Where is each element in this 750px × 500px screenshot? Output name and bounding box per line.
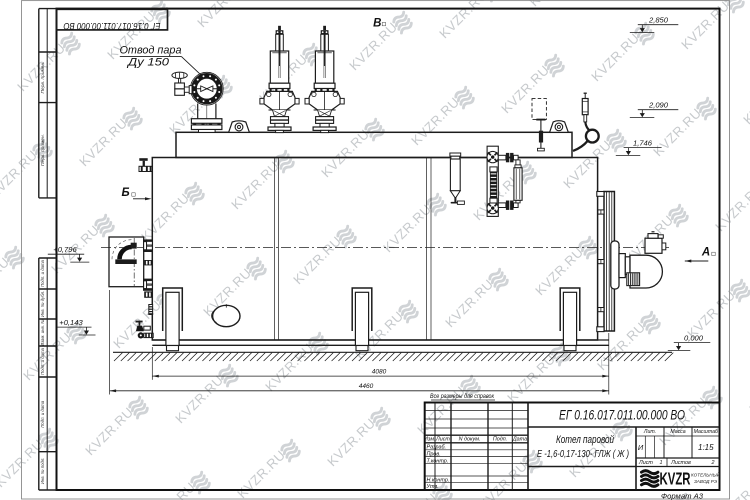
svg-text:Подп. и дата: Подп. и дата <box>40 400 45 428</box>
svg-text:2,090: 2,090 <box>648 100 669 109</box>
svg-text:ЗАВОД РЭ: ЗАВОД РЭ <box>694 479 718 484</box>
svg-text:Ду 150: Ду 150 <box>127 57 169 69</box>
svg-text:Котел паровой: Котел паровой <box>556 434 614 446</box>
svg-text:Перв. примен.: Перв. примен. <box>40 62 46 94</box>
svg-text:2,850: 2,850 <box>648 15 669 24</box>
svg-text:Взам. инв. №: Взам. инв. № <box>40 319 45 346</box>
svg-text:1: 1 <box>660 460 663 466</box>
svg-text:Лит.: Лит. <box>643 429 656 435</box>
svg-text:4460: 4460 <box>359 383 374 390</box>
svg-text:Разраб.: Разраб. <box>427 445 447 451</box>
svg-text:Дата: Дата <box>512 437 527 443</box>
svg-text:Изм.: Изм. <box>424 437 436 443</box>
svg-text:Н.контр.: Н.контр. <box>427 477 450 483</box>
svg-text:Масса: Масса <box>670 429 685 435</box>
svg-text:Отвод пара: Отвод пара <box>120 44 182 56</box>
svg-text:Инв. № подл.: Инв. № подл. <box>40 458 45 485</box>
svg-text:Формат А3: Формат А3 <box>661 491 703 500</box>
svg-text:+0,796: +0,796 <box>53 245 77 254</box>
svg-text:Утв.: Утв. <box>426 484 439 490</box>
svg-text:ЕГ 0.16.017.011.00.000 ВО: ЕГ 0.16.017.011.00.000 ВО <box>64 21 161 31</box>
svg-text:0,000: 0,000 <box>684 333 704 342</box>
svg-text:Все размеры для справок: Все размеры для справок <box>430 392 495 400</box>
svg-text:В: В <box>373 17 381 29</box>
svg-text:Подп. и дата: Подп. и дата <box>40 259 45 287</box>
svg-text:Масштаб: Масштаб <box>694 429 719 435</box>
svg-text:Подп.: Подп. <box>493 437 507 443</box>
svg-text:1:15: 1:15 <box>698 443 714 452</box>
svg-text:Подп. и дата: Подп. и дата <box>40 347 45 375</box>
svg-text:Т.контр.: Т.контр. <box>427 458 449 464</box>
svg-text:KVZR: KVZR <box>660 469 691 489</box>
svg-text:Листов: Листов <box>670 460 691 466</box>
svg-text:И: И <box>638 443 644 452</box>
svg-text:Лист: Лист <box>435 437 450 443</box>
svg-text:Пров.: Пров. <box>427 451 441 457</box>
svg-text:2: 2 <box>711 460 715 466</box>
svg-text:Инв. № дубл.: Инв. № дубл. <box>40 291 45 317</box>
svg-text:Перв. примен.: Перв. примен. <box>40 134 46 166</box>
svg-text:4080: 4080 <box>372 368 387 375</box>
svg-text:N докум.: N докум. <box>459 437 481 443</box>
svg-text:КОТЕЛЬНЫЙ: КОТЕЛЬНЫЙ <box>691 471 721 478</box>
svg-text:Е -1,6-0,17-130- ГЛЖ ( Ж ): Е -1,6-0,17-130- ГЛЖ ( Ж ) <box>537 449 629 460</box>
svg-text:ЕГ 0.16.017.011.00.000 ВО: ЕГ 0.16.017.011.00.000 ВО <box>559 408 685 424</box>
svg-text:Лист: Лист <box>638 460 653 466</box>
svg-text:+0,143: +0,143 <box>59 318 83 327</box>
svg-text:А: А <box>701 246 710 258</box>
svg-text:1,746: 1,746 <box>633 138 653 147</box>
svg-text:Б: Б <box>122 187 130 199</box>
